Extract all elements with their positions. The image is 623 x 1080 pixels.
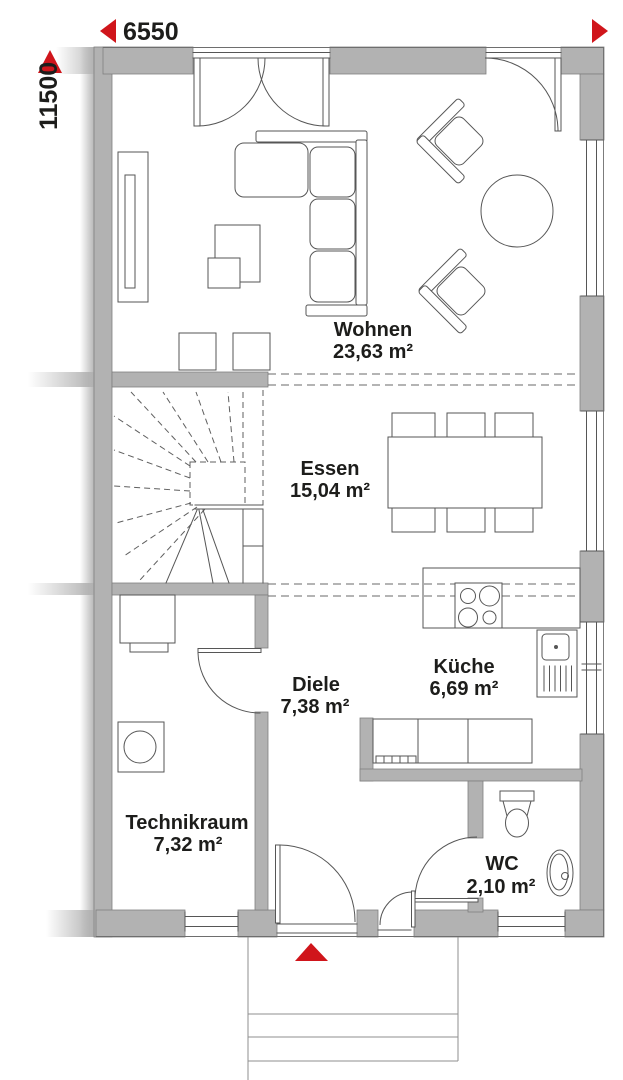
terrace-door [485,53,561,132]
room-label-essen: Essen 15,04 m² [290,458,370,502]
dining-chair [392,506,435,532]
room-name: WC [485,853,518,875]
room-area: 2,10 m² [467,876,536,898]
armchair [415,98,501,184]
room-label-diele: Diele 7,38 m² [281,674,350,718]
wall-stair-technikraum [112,583,268,595]
room-area: 23,63 m² [333,341,413,363]
dining-table [388,437,542,508]
window-essen [581,411,603,551]
window-technikraum [185,912,238,931]
cooktop [455,583,502,628]
room-name: Essen [301,458,360,480]
stair-eye [190,462,245,505]
sofa [235,131,367,316]
room-label-wohnen: Wohnen 23,63 m² [333,319,413,363]
toilet [500,791,534,837]
floor-plan-page: 6550 11500 Wohnen 23,63 m² Essen 15,04 m… [0,0,623,1080]
washbasin [547,850,573,896]
room-area: 15,04 m² [290,480,370,502]
coffee-table [208,225,260,288]
window-kueche [581,622,603,734]
wall-unit [118,152,148,302]
room-name: Küche [433,656,494,678]
room-label-technikraum: Technikraum 7,32 m² [126,812,249,856]
washing-machine [118,722,164,772]
dim-height-label: 11500 [35,62,63,130]
dim-width-label: 6550 [123,18,179,46]
dining-chair [495,506,533,532]
terrace-double-door [193,53,330,127]
room-label-kueche: Küche 6,69 m² [430,656,499,700]
boiler [120,595,175,652]
party-wall-fades [28,47,103,937]
side-door [378,891,415,930]
room-area: 7,38 m² [281,696,350,718]
stool [233,333,270,370]
technikraum-door [198,649,261,714]
entrance-arrow-icon [295,943,328,961]
dining-chair [447,413,485,439]
dining-chair [495,413,533,439]
window-wohnen [581,140,603,296]
stool [179,333,216,370]
window-wc [498,912,565,931]
porch-steps [248,937,458,1080]
dining-chair [447,506,485,532]
round-table [481,175,553,247]
dim-arrow-right-icon [592,19,608,43]
armchair [417,248,503,334]
wall-kueche-wc [360,769,582,781]
floor-plan-svg: 6550 11500 Wohnen 23,63 m² Essen 15,04 m… [0,0,623,1080]
party-wall [94,47,112,937]
room-area: 6,69 m² [430,678,499,700]
essen-furniture [388,413,542,532]
front-door [276,845,358,933]
staircase [114,390,263,583]
room-name: Technikraum [126,812,249,834]
technikraum-fixtures [118,595,175,772]
room-area: 7,32 m² [154,834,223,856]
room-name: Wohnen [334,319,413,341]
room-label-wc: WC 2,10 m² [467,853,536,898]
wall-wohnen-stair [112,372,268,387]
room-name: Diele [292,674,340,696]
dim-arrow-left-icon [100,19,116,43]
dining-chair [392,413,435,439]
